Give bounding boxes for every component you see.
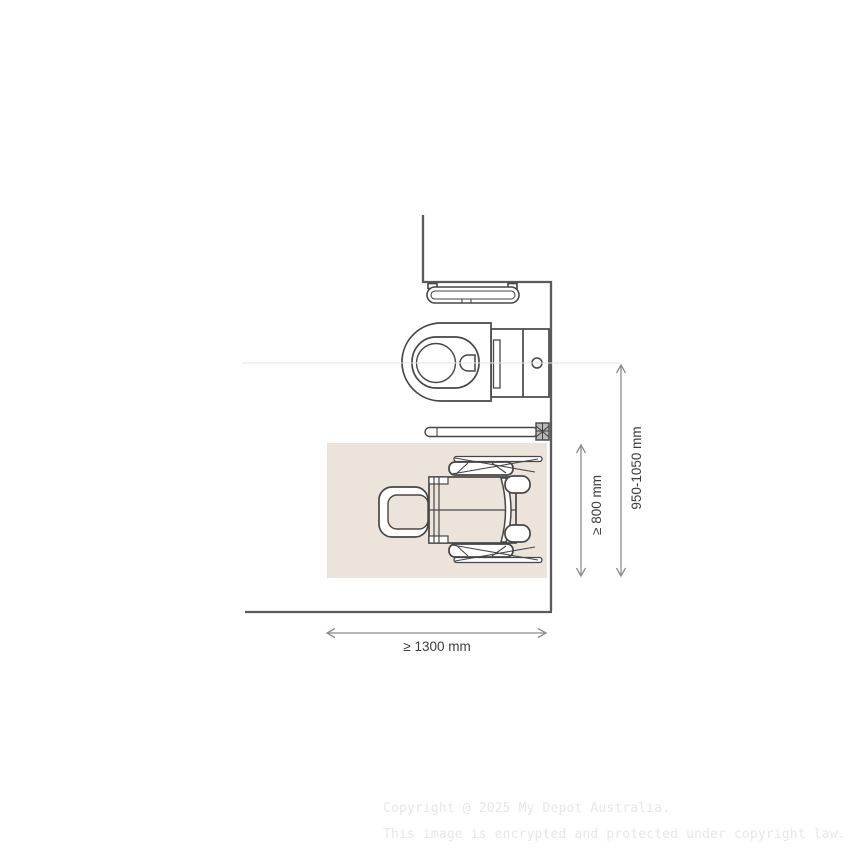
dimension-clearance-depth	[577, 445, 586, 576]
armrest-pad-top	[505, 476, 530, 493]
diagram-canvas: ≥ 1300 mm ≥ 800 mm 950-1050 mm Copyright…	[0, 0, 850, 850]
dimension-centerline-range	[617, 365, 626, 576]
rail-tube-outer	[427, 287, 519, 303]
label-clearance-width: ≥ 1300 mm	[403, 639, 470, 654]
wheelchair-footrest	[379, 487, 428, 537]
armrest-pad-bottom	[505, 525, 530, 542]
accessible-toilet-diagram: ≥ 1300 mm ≥ 800 mm 950-1050 mm Copyright…	[0, 0, 850, 850]
watermark-line1: Copyright @ 2025 My Depot Australia.	[383, 801, 670, 816]
toilet-plan-view	[402, 323, 549, 401]
fold-down-grab-rail	[425, 423, 549, 440]
dimension-clearance-width	[327, 629, 546, 638]
rear-grab-rail	[427, 284, 519, 304]
label-centerline-range: 950-1050 mm	[629, 426, 644, 509]
seat-hinge-bar	[494, 340, 501, 388]
watermark-line2: This image is encrypted and protected un…	[383, 827, 846, 842]
fold-rail-tube	[425, 428, 538, 437]
label-clearance-depth: ≥ 800 mm	[589, 475, 604, 535]
